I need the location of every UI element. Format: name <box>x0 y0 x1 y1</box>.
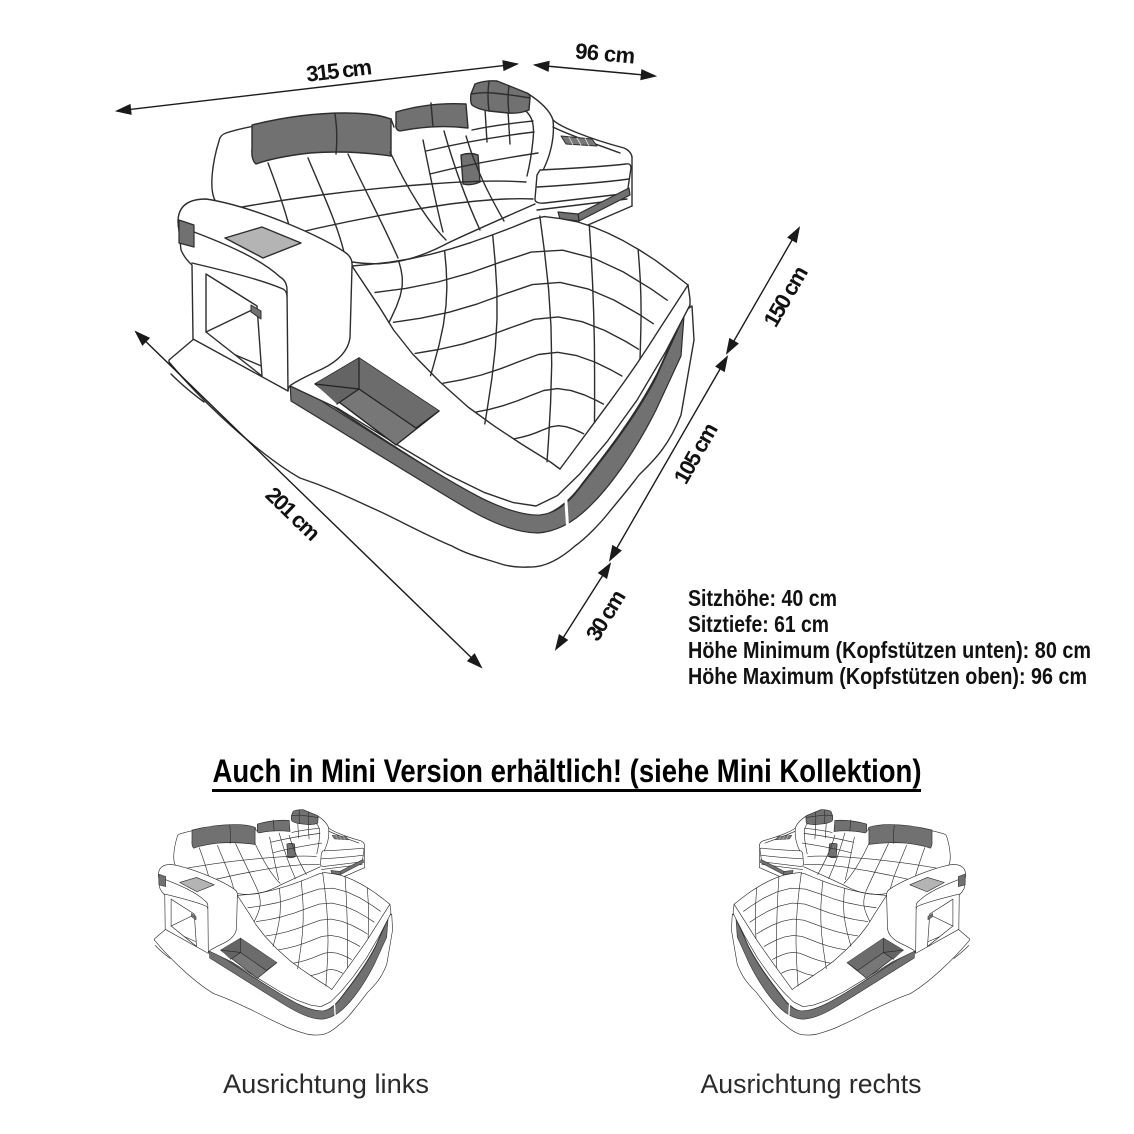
svg-text:Sitztiefe: 61 cm: Sitztiefe: 61 cm <box>688 611 829 637</box>
svg-text:150 cm: 150 cm <box>758 261 813 331</box>
svg-text:96 cm: 96 cm <box>574 38 636 68</box>
svg-text:105 cm: 105 cm <box>669 418 723 488</box>
svg-text:Höhe Minimum (Kopfstützen unte: Höhe Minimum (Kopfstützen unten): 80 cm <box>688 637 1091 663</box>
svg-text:201 cm: 201 cm <box>261 482 326 546</box>
svg-text:Ausrichtung rechts: Ausrichtung rechts <box>701 1069 922 1099</box>
svg-text:Auch in Mini Version erhältlic: Auch in Mini Version erhältlich! (siehe … <box>213 753 922 789</box>
svg-text:Ausrichtung links: Ausrichtung links <box>223 1069 429 1099</box>
svg-text:Sitzhöhe: 40 cm: Sitzhöhe: 40 cm <box>688 585 837 611</box>
svg-text:Höhe Maximum (Kopfstützen oben: Höhe Maximum (Kopfstützen oben): 96 cm <box>688 663 1087 689</box>
svg-text:30 cm: 30 cm <box>581 585 631 645</box>
